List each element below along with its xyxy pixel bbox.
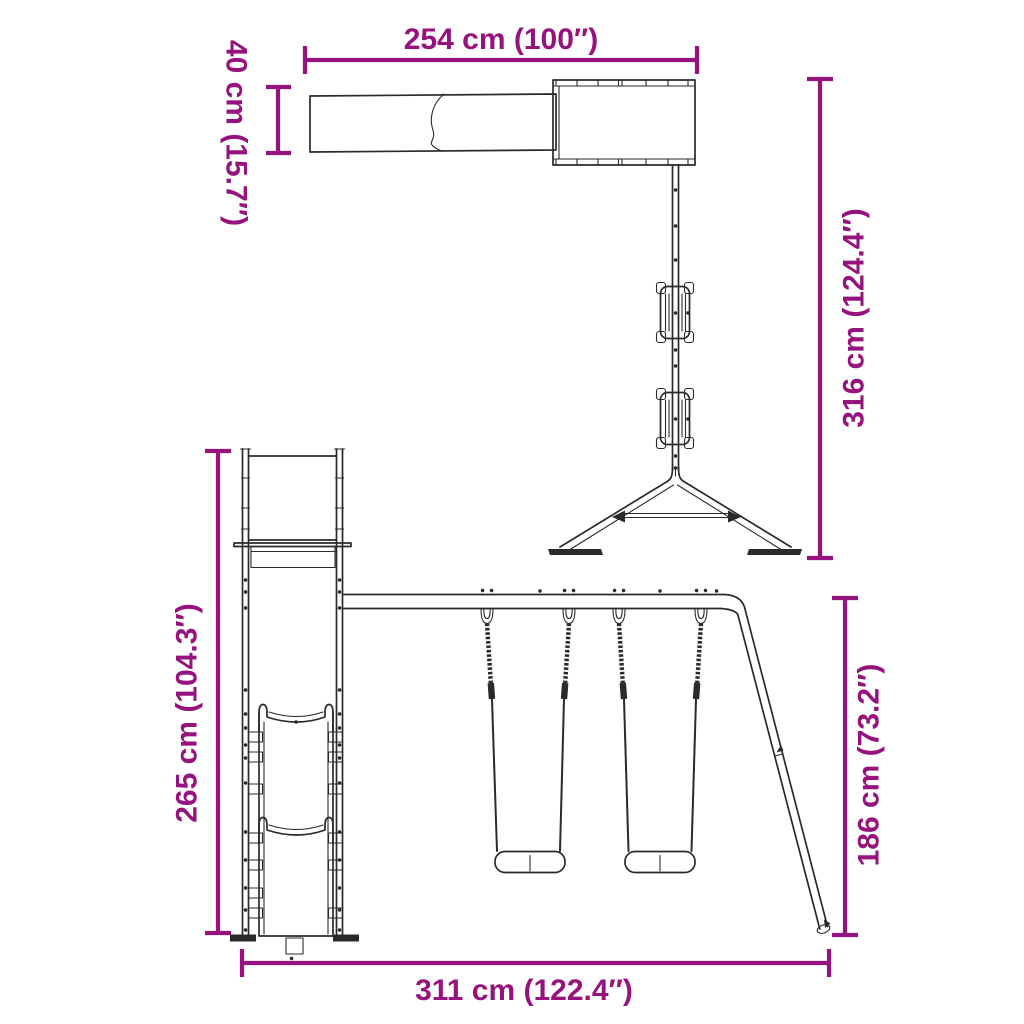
swing-hangers	[481, 609, 707, 624]
swings-front-view	[481, 609, 707, 873]
dimension-slide-width: 40 cm (15.7″)	[220, 40, 292, 226]
top-view-drawing	[310, 80, 802, 555]
diagram-canvas: 254 cm (100″) 40 cm (15.7″) 316 cm (124.…	[0, 0, 1024, 1024]
swing-seat-2	[625, 852, 695, 873]
playset-dimension-diagram: 254 cm (100″) 40 cm (15.7″) 316 cm (124.…	[0, 0, 1024, 1024]
dimension-overall-depth-label: 316 cm (124.4″)	[838, 208, 871, 428]
dimension-overall-width: 311 cm (122.4″)	[242, 949, 829, 1007]
slide-foot	[286, 938, 303, 954]
swing-seat-top-view-2	[657, 389, 694, 449]
tie-arrow-left	[612, 511, 625, 523]
leg-joint	[775, 754, 783, 756]
dimension-swing-frame-height-label: 186 cm (73.2″)	[853, 664, 886, 867]
dimension-tower-height: 265 cm (104.3″)	[171, 451, 232, 933]
swing-seat-1	[495, 852, 565, 873]
dimension-annotations: 254 cm (100″) 40 cm (15.7″) 316 cm (124.…	[171, 23, 886, 1007]
a-frame-top-view	[548, 467, 802, 555]
slide-top-view	[310, 94, 556, 152]
dimension-slide-width-label: 40 cm (15.7″)	[220, 40, 253, 226]
tower-foot-right	[333, 935, 359, 942]
swing-seat-top-view-1	[657, 283, 694, 343]
dimension-beam-length: 254 cm (100″)	[305, 23, 697, 74]
deck-top-view	[553, 80, 695, 165]
dimension-overall-depth: 316 cm (124.4″)	[807, 79, 871, 558]
a-frame-foot-left	[548, 549, 603, 555]
tower-foot-left	[230, 935, 256, 942]
swing-beam-top-view	[673, 165, 679, 470]
slide-front-view	[249, 705, 343, 959]
dimension-swing-frame-height: 186 cm (73.2″)	[832, 598, 886, 935]
a-frame-foot-right	[747, 549, 802, 555]
dimension-beam-length-label: 254 cm (100″)	[404, 23, 599, 56]
swing-frame-front-view	[343, 591, 831, 935]
dimension-tower-height-label: 265 cm (104.3″)	[171, 603, 204, 823]
canopy	[249, 456, 337, 540]
tower-front-view	[230, 449, 359, 942]
front-view-drawing	[230, 449, 831, 959]
dimension-overall-width-label: 311 cm (122.4″)	[415, 974, 633, 1007]
